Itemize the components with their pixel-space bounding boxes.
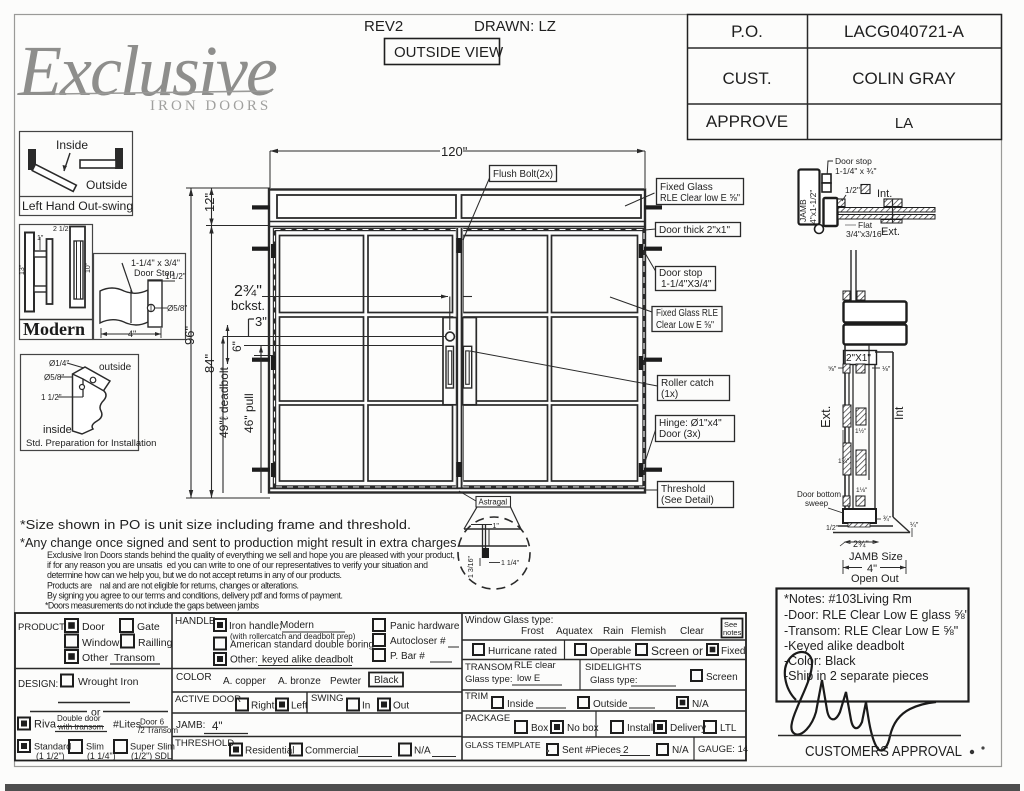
svg-text:Glass type:: Glass type: xyxy=(465,674,513,685)
svg-text:Threshold: Threshold xyxy=(661,484,705,495)
svg-text:Wrought Iron: Wrought Iron xyxy=(78,676,139,688)
svg-text:Ø5/8": Ø5/8" xyxy=(167,304,187,313)
svg-text:Int: Int xyxy=(892,406,906,420)
svg-text:Gate: Gate xyxy=(137,621,160,633)
svg-text:Left Hand Out-swing: Left Hand Out-swing xyxy=(22,199,133,213)
svg-text:Out: Out xyxy=(393,701,409,712)
svg-text:Frost: Frost xyxy=(521,626,544,637)
svg-text:-Ship in 2 separate pieces: -Ship in 2 separate pieces xyxy=(784,669,929,683)
svg-text:Int.: Int. xyxy=(877,188,892,200)
svg-text:Ext.: Ext. xyxy=(818,406,833,428)
svg-text:ACTIVE DOOR: ACTIVE DOOR xyxy=(175,694,241,705)
svg-text:APPROVE: APPROVE xyxy=(706,112,788,131)
svg-text:Inside: Inside xyxy=(507,699,534,710)
svg-text:Ø1/4": Ø1/4" xyxy=(49,359,69,368)
svg-text:12": 12" xyxy=(202,193,217,212)
svg-text:Products are nal and are no: Products are nal and are not eligible fo… xyxy=(47,581,299,591)
svg-text:Window Glass type:: Window Glass type: xyxy=(465,615,553,626)
svg-text:1/2": 1/2" xyxy=(845,185,860,195)
svg-text:Box: Box xyxy=(531,723,548,734)
svg-text:84": 84" xyxy=(202,354,217,373)
svg-text:Exclusive Iron Doors stands be: Exclusive Iron Doors stands behind the q… xyxy=(47,550,455,560)
svg-text:-Transom: RLE Clear Low E ⅝": -Transom: RLE Clear Low E ⅝" xyxy=(784,624,958,638)
svg-text:*Doors measurements do not inc: *Doors measurements do not include the g… xyxy=(45,601,260,611)
svg-text:DRAWN: LZ: DRAWN: LZ xyxy=(474,18,556,35)
svg-text:46" pull: 46" pull xyxy=(242,393,256,433)
svg-text:sweep: sweep xyxy=(805,499,829,508)
svg-text:JAMB:: JAMB: xyxy=(176,720,205,731)
svg-text:DESIGN:: DESIGN: xyxy=(18,679,58,690)
svg-text:Sent #Pieces: Sent #Pieces xyxy=(562,745,621,756)
svg-text:TRIM: TRIM xyxy=(465,691,488,702)
svg-text:notes: notes xyxy=(723,628,742,637)
svg-text:GLASS TEMPLATE: GLASS TEMPLATE xyxy=(465,740,541,750)
svg-text:By signing you agree to our te: By signing you agree to our terms and co… xyxy=(47,591,343,601)
svg-text:GAUGE: 14: GAUGE: 14 xyxy=(698,744,748,755)
svg-text:4"x1-1/2": 4"x1-1/2" xyxy=(808,190,818,224)
svg-text:(1 1/4"): (1 1/4") xyxy=(87,751,116,761)
svg-text:Pewter: Pewter xyxy=(330,676,362,687)
svg-text:Window: Window xyxy=(82,637,120,649)
svg-text:Hurricane rated: Hurricane rated xyxy=(488,646,557,657)
svg-text:IRON DOORS: IRON DOORS xyxy=(150,98,271,114)
svg-text:PACKAGE: PACKAGE xyxy=(465,713,510,724)
svg-text:Door (3x): Door (3x) xyxy=(659,429,701,440)
svg-text:1-1/4" x 3/4": 1-1/4" x 3/4" xyxy=(131,258,180,268)
svg-text:(See Detail): (See Detail) xyxy=(661,495,714,506)
svg-text:Flush Bolt(2x): Flush Bolt(2x) xyxy=(493,169,553,180)
svg-text:N/A: N/A xyxy=(692,699,709,710)
svg-text:Inside: Inside xyxy=(56,138,88,152)
svg-text:Modern: Modern xyxy=(280,620,314,631)
svg-text:1½": 1½" xyxy=(855,427,867,435)
svg-text:Modern: Modern xyxy=(23,319,85,339)
svg-text:1-1/4"X3/4": 1-1/4"X3/4" xyxy=(661,279,712,290)
svg-text:No box: No box xyxy=(567,723,599,734)
svg-text:2¾": 2¾" xyxy=(853,539,869,549)
svg-text:Glass type:: Glass type: xyxy=(590,675,638,686)
svg-text:(1/2") SDL: (1/2") SDL xyxy=(131,751,172,761)
svg-text:1 1/4": 1 1/4" xyxy=(501,560,520,567)
svg-text:Flemish: Flemish xyxy=(631,626,666,637)
svg-text:Commercial: Commercial xyxy=(305,746,358,757)
svg-text:SWING: SWING xyxy=(311,693,344,704)
svg-text:¾": ¾" xyxy=(883,516,892,523)
svg-text:LA: LA xyxy=(895,115,913,132)
svg-text:Install: Install xyxy=(627,723,653,734)
svg-text:LACG040721-A: LACG040721-A xyxy=(844,22,965,41)
svg-text:In: In xyxy=(362,701,370,712)
svg-text:SIDELIGHTS: SIDELIGHTS xyxy=(585,662,642,673)
svg-text:*Any change once signed and se: *Any change once signed and sent to prod… xyxy=(20,536,460,550)
svg-text:PRODUCT:: PRODUCT: xyxy=(18,622,67,633)
svg-text:Roller catch: Roller catch xyxy=(661,378,714,389)
svg-text:Right: Right xyxy=(251,701,275,712)
svg-text:4": 4" xyxy=(128,329,136,339)
svg-text:Screen: Screen xyxy=(706,672,738,683)
svg-text:2"X1": 2"X1" xyxy=(846,353,871,364)
svg-text:REV2: REV2 xyxy=(364,18,403,35)
svg-text:Fixed Glass: Fixed Glass xyxy=(660,182,713,193)
svg-text:Aquatex: Aquatex xyxy=(556,626,593,637)
svg-text:outside: outside xyxy=(99,362,132,373)
svg-text:American standard double borin: American standard double boring xyxy=(230,640,374,651)
svg-text:COLIN GRAY: COLIN GRAY xyxy=(852,69,956,88)
svg-text:Riva: Riva xyxy=(34,719,57,731)
svg-text:Operable: Operable xyxy=(590,646,632,657)
svg-text:3/4"x3/16": 3/4"x3/16" xyxy=(846,229,885,239)
svg-text:Std. Preparation for Installat: Std. Preparation for Installation xyxy=(26,438,156,449)
svg-text:¼": ¼" xyxy=(910,522,919,529)
svg-text:10": 10" xyxy=(85,262,92,273)
svg-text:1 1/2": 1 1/2" xyxy=(165,272,186,281)
svg-text:1/2": 1/2" xyxy=(826,525,839,532)
svg-text:Door: Door xyxy=(82,621,105,633)
svg-text:Outside: Outside xyxy=(593,699,628,710)
svg-text:COLOR: COLOR xyxy=(176,672,212,683)
svg-text:Door bottom: Door bottom xyxy=(797,490,841,499)
svg-text:-Door: RLE Clear Low E glass ⅝: -Door: RLE Clear Low E glass ⅝" xyxy=(784,608,969,622)
svg-text:Outside: Outside xyxy=(86,178,128,192)
svg-text:bckst.: bckst. xyxy=(231,298,265,313)
svg-text:A. bronze: A. bronze xyxy=(278,676,321,687)
svg-text:with transom: with transom xyxy=(57,723,104,732)
svg-text:determine how can we help you,: determine how can we help you, but we do… xyxy=(47,570,342,580)
svg-text:2 1/2": 2 1/2" xyxy=(53,226,72,233)
svg-text:RLE clear: RLE clear xyxy=(514,660,556,671)
svg-text:Railling: Railling xyxy=(138,637,173,649)
svg-text:Fixed: Fixed xyxy=(721,646,745,657)
svg-text:⅝": ⅝" xyxy=(828,366,837,373)
svg-text:HANDLE: HANDLE xyxy=(175,616,216,627)
svg-text:Rain: Rain xyxy=(603,626,624,637)
svg-text:Clear: Clear xyxy=(680,626,705,637)
svg-text:JAMB: JAMB xyxy=(798,199,808,222)
svg-text:1-1/4" x ¾": 1-1/4" x ¾" xyxy=(835,166,876,176)
svg-text:Other:: Other: xyxy=(230,655,258,666)
svg-text:(1 1/2"): (1 1/2") xyxy=(36,751,65,761)
svg-text:Left: Left xyxy=(291,701,308,712)
svg-text:P. Bar #: P. Bar # xyxy=(390,651,425,662)
svg-text:CUST.: CUST. xyxy=(722,69,771,88)
svg-text:1": 1" xyxy=(493,523,500,530)
svg-text:(1x): (1x) xyxy=(661,389,678,400)
svg-text:inside: inside xyxy=(43,424,72,436)
svg-text:THRESHOLD: THRESHOLD xyxy=(175,738,234,749)
svg-text:Door thick 2"x1": Door thick 2"x1" xyxy=(659,225,730,236)
svg-text:⅛": ⅛" xyxy=(882,366,891,373)
svg-text:*Notes: #103Living Rm: *Notes: #103Living Rm xyxy=(784,592,912,606)
svg-text:1⅛": 1⅛" xyxy=(856,487,868,494)
svg-text:#Lites: #Lites xyxy=(113,719,141,731)
svg-text:49"ℓ deadbolt: 49"ℓ deadbolt xyxy=(217,366,231,438)
svg-text:Astragal: Astragal xyxy=(479,498,508,507)
svg-text:Transom: Transom xyxy=(114,652,155,664)
svg-text:1 3/16": 1 3/16" xyxy=(468,556,475,578)
svg-text:A. copper: A. copper xyxy=(223,676,266,687)
svg-text:Door stop: Door stop xyxy=(659,268,703,279)
svg-text:Open Out: Open Out xyxy=(851,573,899,585)
svg-text:Residential: Residential xyxy=(245,746,294,757)
svg-text:1": 1" xyxy=(37,235,44,242)
svg-text:Iron handle;: Iron handle; xyxy=(229,621,282,632)
svg-text:JAMB Size: JAMB Size xyxy=(849,551,903,563)
svg-text:13": 13" xyxy=(19,264,26,275)
svg-text:N/A: N/A xyxy=(414,746,431,757)
svg-text:Autocloser #: Autocloser # xyxy=(390,636,446,647)
svg-text:Door stop: Door stop xyxy=(835,156,872,166)
svg-text:-Color: Black: -Color: Black xyxy=(784,654,856,668)
svg-text:CUSTOMERS APPROVAL: CUSTOMERS APPROVAL xyxy=(805,743,962,760)
svg-text:Delivery: Delivery xyxy=(670,723,706,734)
svg-text:Slim: Slim xyxy=(86,742,104,752)
svg-text:3": 3" xyxy=(255,314,267,329)
svg-text:P.O.: P.O. xyxy=(731,22,763,41)
svg-text:96": 96" xyxy=(182,326,197,345)
svg-text:4": 4" xyxy=(212,721,222,733)
svg-text:120": 120" xyxy=(441,144,468,159)
svg-text:Panic hardware: Panic hardware xyxy=(390,621,460,632)
svg-text:keyed alike deadbolt: keyed alike deadbolt xyxy=(262,655,353,666)
svg-text:Fixed Glass RLE: Fixed Glass RLE xyxy=(656,308,718,319)
svg-text:Super Slim: Super Slim xyxy=(130,742,175,752)
svg-text:1¼": 1¼" xyxy=(838,458,850,465)
svg-text:Black: Black xyxy=(374,675,399,686)
svg-text:Screen or: Screen or xyxy=(651,644,703,658)
svg-text:LTL: LTL xyxy=(720,723,737,734)
svg-text:TRANSOM: TRANSOM xyxy=(465,662,513,673)
svg-text:low E: low E xyxy=(517,673,540,684)
svg-text:Clear Low E ⅝": Clear Low E ⅝" xyxy=(656,320,714,331)
svg-text:2: 2 xyxy=(623,745,629,756)
svg-text:RLE Clear low E ⅝": RLE Clear low E ⅝" xyxy=(660,193,740,204)
svg-text:*Size shown in PO is unit size: *Size shown in PO is unit size including… xyxy=(20,518,411,532)
svg-text:Ext.: Ext. xyxy=(881,226,900,238)
svg-text:Other: Other xyxy=(82,652,109,664)
svg-text:if for any reason you are unsa: if for any reason you are unsatis ed you… xyxy=(47,560,428,570)
svg-text:6": 6" xyxy=(230,341,244,352)
svg-text:Hinge: Ø1"x4": Hinge: Ø1"x4" xyxy=(659,418,722,429)
svg-text:Standard: Standard xyxy=(34,742,71,752)
svg-text:OUTSIDE VIEW: OUTSIDE VIEW xyxy=(394,44,504,61)
svg-text:N/A: N/A xyxy=(672,745,689,756)
